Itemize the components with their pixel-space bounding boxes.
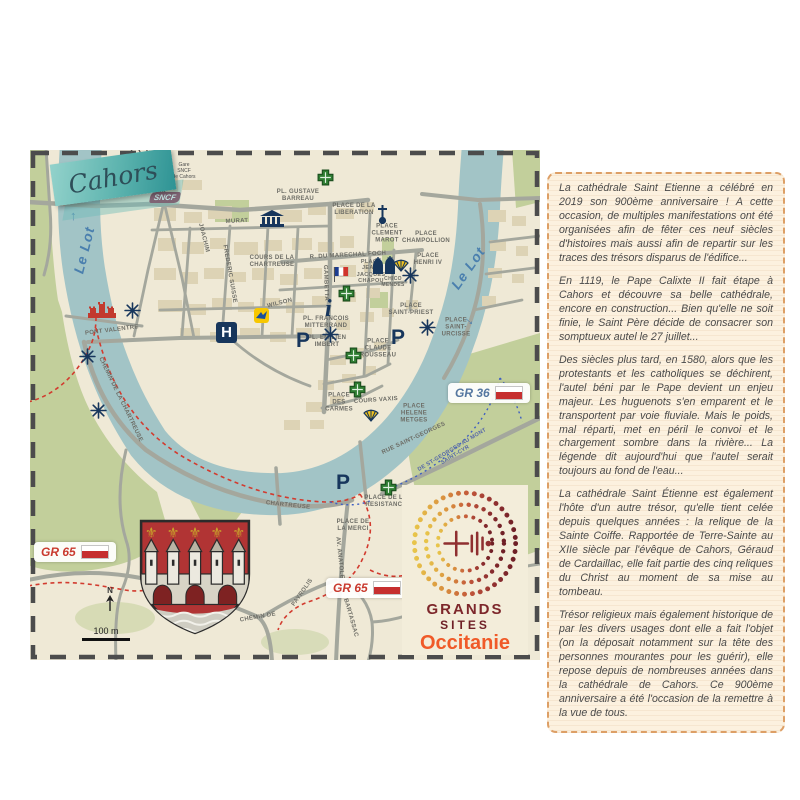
page: PL. GUSTAVE BARREAUPLACE DE LA LIBERATIO… (0, 0, 800, 800)
map-base-drawing (30, 150, 540, 660)
info-panel: La cathédrale Saint Etienne a célébré en… (547, 172, 785, 733)
panel-paragraph: En 1119, le Pape Calixte II fait étape à… (559, 275, 773, 345)
panel-paragraph: La cathédrale Saint Etienne a célébré en… (559, 182, 773, 266)
banner-title: Cahors (66, 155, 160, 199)
panel-paragraph: La cathédrale Saint Étienne est égalemen… (559, 488, 773, 600)
panel-paragraph: Trésor religieux mais également historiq… (559, 609, 773, 721)
cahors-map: PL. GUSTAVE BARREAUPLACE DE LA LIBERATIO… (30, 150, 540, 660)
panel-paragraph: Des siècles plus tard, en 1580, alors qu… (559, 354, 773, 480)
